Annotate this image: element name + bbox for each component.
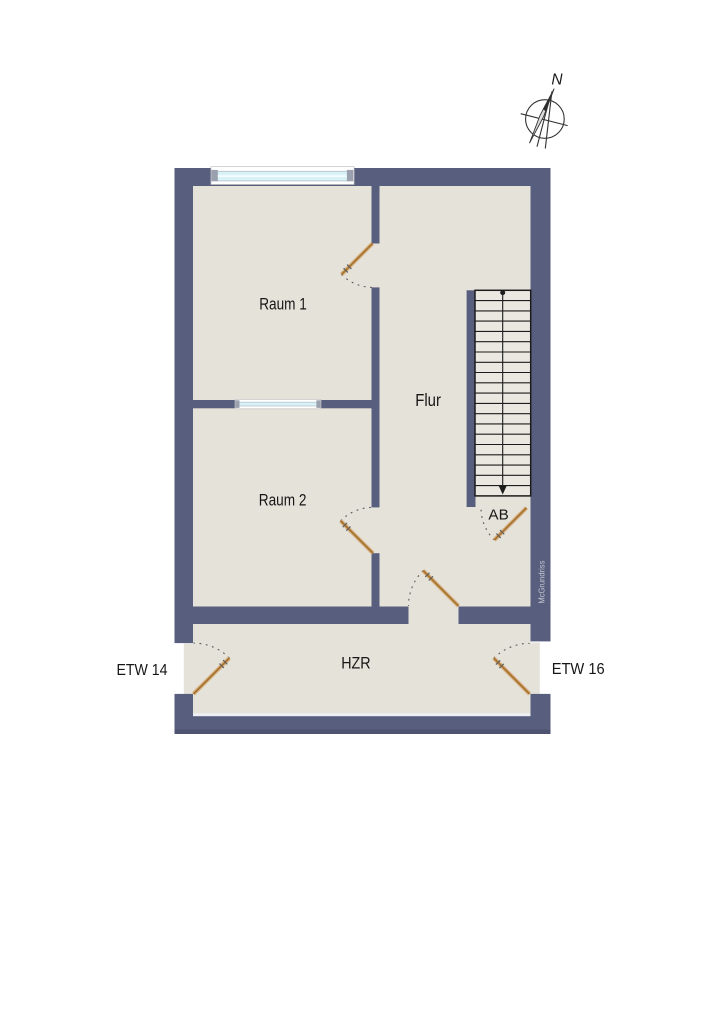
svg-text:AB: AB: [488, 506, 508, 523]
svg-text:Raum 2: Raum 2: [259, 491, 307, 510]
svg-text:ETW 16: ETW 16: [552, 661, 605, 678]
svg-text:HZR: HZR: [341, 653, 370, 672]
svg-text:McGrundriss: McGrundriss: [537, 561, 547, 604]
svg-text:Raum 1: Raum 1: [259, 294, 307, 313]
svg-text:ETW 14: ETW 14: [117, 662, 168, 679]
svg-text:Flur: Flur: [415, 390, 441, 410]
svg-text:N: N: [551, 71, 563, 88]
